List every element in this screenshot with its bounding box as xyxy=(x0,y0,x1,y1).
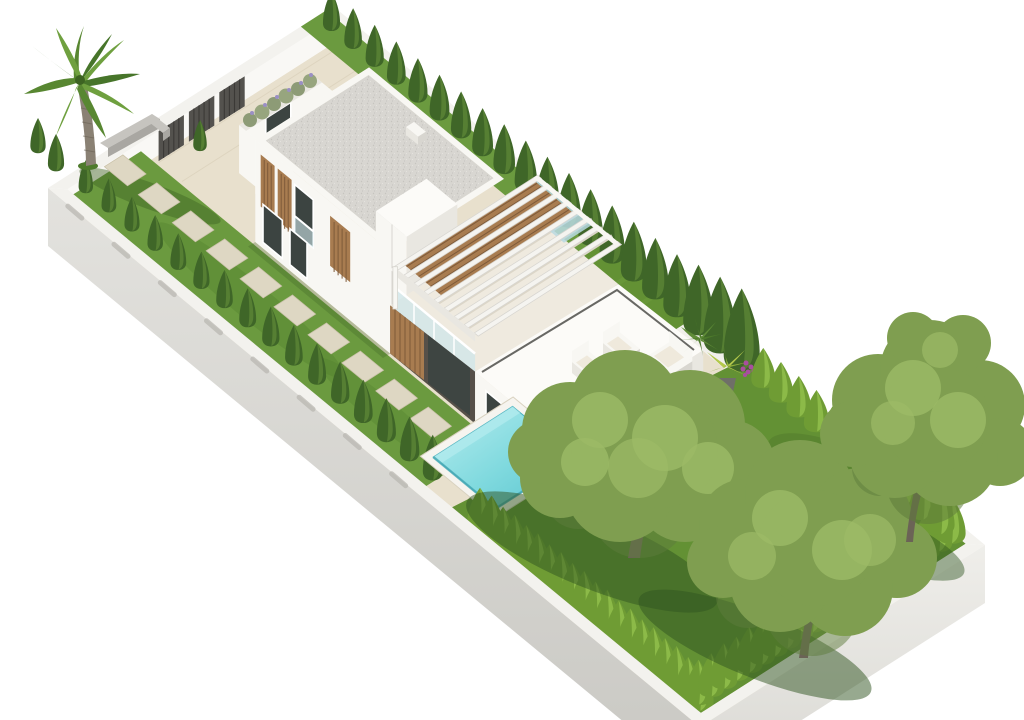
pergola-post xyxy=(393,267,398,309)
villa-render: Walled villa plot, aerial isometric view… xyxy=(0,0,1024,720)
